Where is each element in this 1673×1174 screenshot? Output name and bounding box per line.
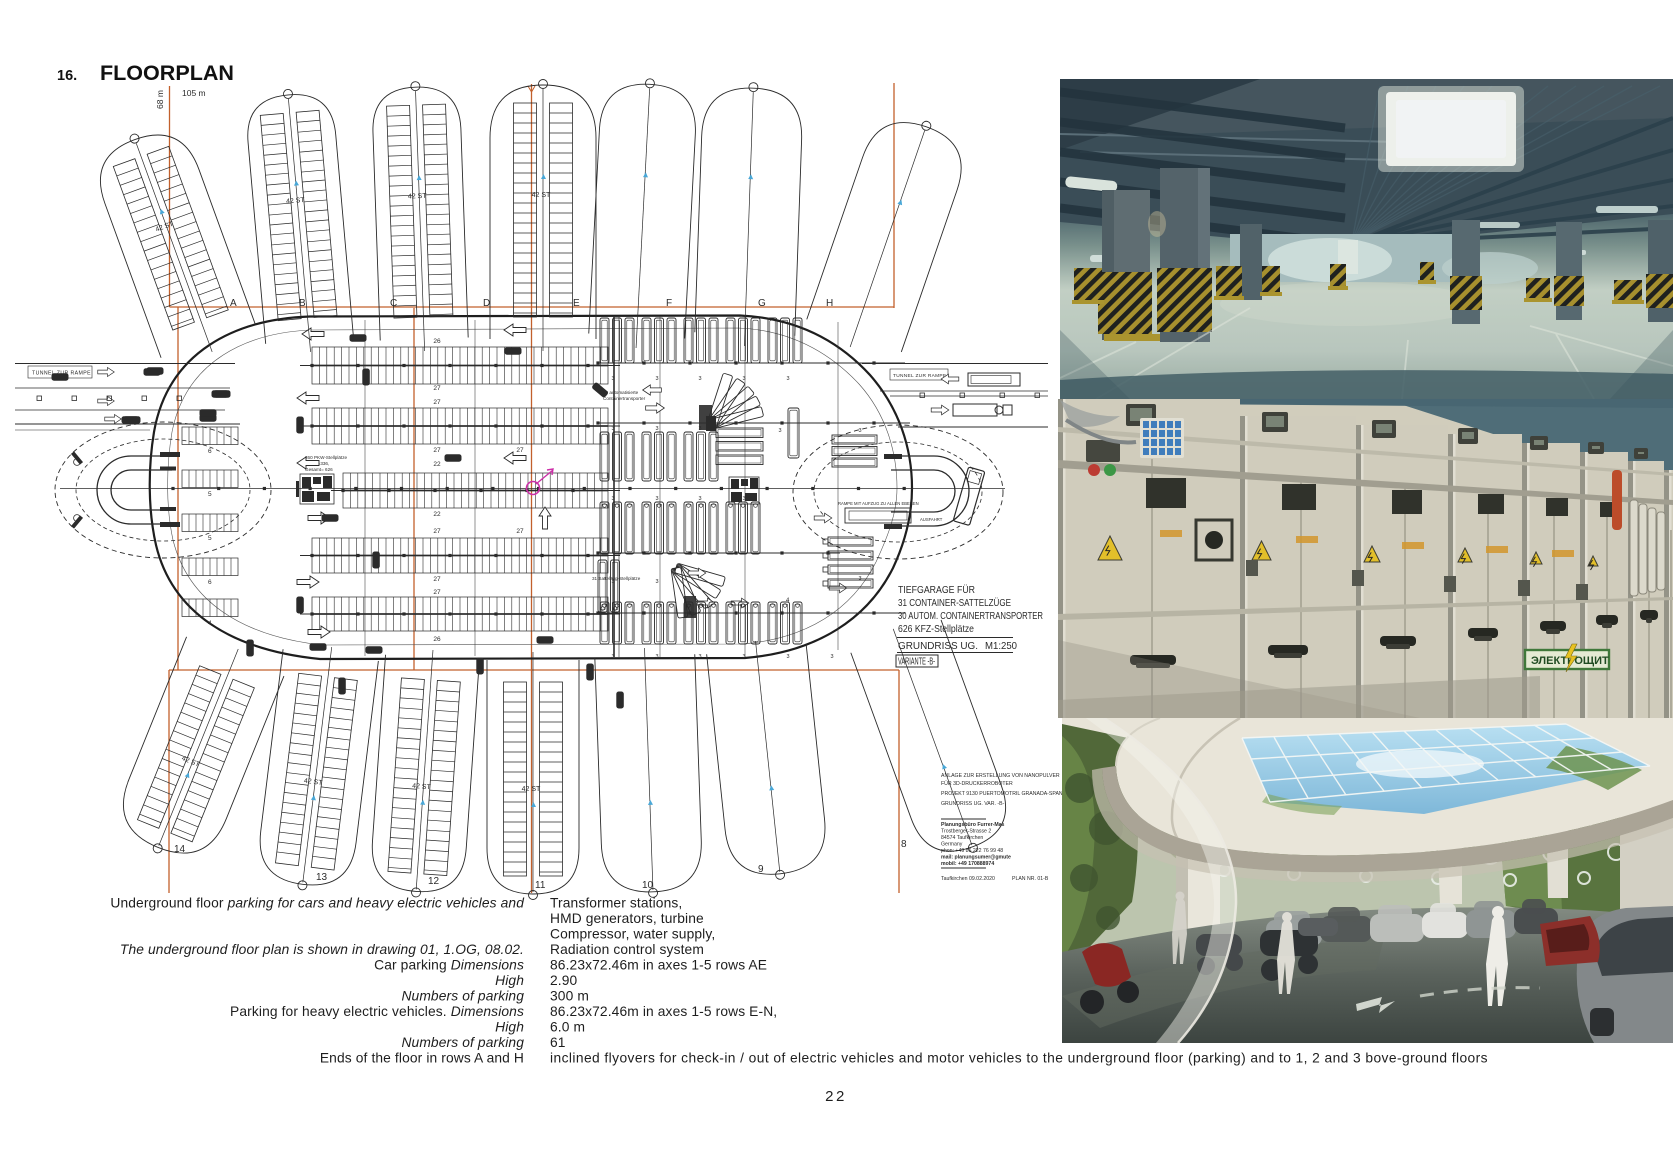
svg-text:VARIANTE -B-: VARIANTE -B-: [898, 657, 935, 668]
svg-text:16.: 16.: [57, 68, 77, 84]
svg-text:27: 27: [433, 589, 441, 596]
svg-text:42 ST: 42 ST: [412, 783, 432, 791]
svg-text:3: 3: [611, 376, 614, 382]
svg-text:22: 22: [433, 461, 441, 468]
svg-text:27: 27: [433, 528, 441, 535]
svg-text:3: 3: [830, 654, 833, 660]
svg-text:3: 3: [611, 426, 614, 432]
svg-text:13: 13: [316, 872, 328, 883]
svg-text:68 m: 68 m: [155, 90, 165, 109]
svg-text:GRUNDRISS UG. VAR. -B-: GRUNDRISS UG. VAR. -B-: [941, 801, 1005, 807]
svg-text:14: 14: [174, 844, 186, 855]
svg-text:Compressor, water supply,: Compressor, water supply,: [550, 927, 715, 942]
svg-text:Car parking Dimensions: Car parking Dimensions: [374, 958, 524, 973]
svg-text:31 CONTAINER-SATTELZÜGE: 31 CONTAINER-SATTELZÜGE: [898, 597, 1011, 609]
svg-text:5: 5: [208, 535, 212, 542]
svg-text:phon: +49 86 222 76 99 48: phon: +49 86 222 76 99 48: [941, 848, 1003, 854]
svg-text:61: 61: [550, 1035, 566, 1050]
svg-text:F: F: [666, 298, 672, 309]
svg-text:Gesamt= 626: Gesamt= 626: [305, 467, 333, 472]
svg-text:M1:250: M1:250: [985, 640, 1017, 652]
svg-text:3: 3: [698, 376, 701, 382]
svg-text:A: A: [230, 298, 237, 309]
svg-text:Numbers of parking: Numbers of parking: [401, 1035, 524, 1050]
svg-text:3: 3: [858, 576, 861, 582]
svg-text:42 ST: 42 ST: [303, 778, 323, 787]
svg-text:Parking for heavy electric veh: Parking for heavy electric vehicles. Dim…: [230, 1004, 524, 1019]
svg-text:42 ST: 42 ST: [532, 192, 551, 199]
svg-text:105 m: 105 m: [182, 88, 206, 98]
svg-text:mail: planungsumer@gmute: mail: planungsumer@gmute: [941, 855, 1011, 861]
svg-text:3: 3: [742, 376, 745, 382]
svg-text:mobil: +49 170888974: mobil: +49 170888974: [941, 861, 994, 867]
svg-text:FLOORPLAN: FLOORPLAN: [100, 61, 234, 85]
svg-text:3: 3: [698, 654, 701, 660]
svg-text:6: 6: [208, 579, 212, 586]
svg-text:42 ST: 42 ST: [286, 197, 306, 206]
svg-text:27: 27: [433, 447, 441, 454]
svg-text:D: D: [483, 298, 490, 309]
svg-text:High: High: [495, 973, 524, 988]
svg-text:84574 Taufkirchen: 84574 Taufkirchen: [941, 835, 983, 841]
svg-text:3: 3: [655, 654, 658, 660]
svg-text:ANLAGE ZUR ERSTELLUNG VON NANO: ANLAGE ZUR ERSTELLUNG VON NANOPULVER: [941, 773, 1060, 779]
svg-text:3: 3: [698, 496, 701, 502]
svg-text:Germany: Germany: [941, 842, 963, 848]
svg-text:Planungsbüro Furrer-Mas: Planungsbüro Furrer-Mas: [941, 822, 1005, 828]
svg-text:27: 27: [516, 447, 524, 454]
svg-text:27: 27: [433, 399, 441, 406]
svg-text:10: 10: [642, 880, 654, 891]
svg-text:G: G: [758, 298, 766, 309]
svg-text:GRUNDRISS UG.: GRUNDRISS UG.: [898, 640, 978, 652]
svg-text:42 ST: 42 ST: [522, 786, 541, 793]
svg-text:26: 26: [433, 636, 441, 643]
svg-text:TUNNEL ZUR RAMPE: TUNNEL ZUR RAMPE: [893, 373, 946, 379]
svg-text:3: 3: [611, 579, 614, 585]
svg-text:30 automatisierte: 30 automatisierte: [603, 390, 639, 395]
svg-text:3: 3: [655, 376, 658, 382]
svg-text:300 m: 300 m: [550, 989, 589, 1004]
svg-text:3: 3: [742, 654, 745, 660]
svg-text:626 KFZ-Stellplätze: 626 KFZ-Stellplätze: [898, 623, 974, 635]
svg-text:TIEFGARAGE FÜR: TIEFGARAGE FÜR: [898, 584, 975, 596]
svg-text:Containertransporter: Containertransporter: [603, 396, 646, 401]
svg-text:3: 3: [611, 654, 614, 660]
svg-text:Taufkirchen 09.02.2020: Taufkirchen 09.02.2020: [941, 876, 995, 882]
svg-text:B: B: [299, 298, 306, 309]
svg-text:Trostberger-Strasse 2: Trostberger-Strasse 2: [941, 829, 991, 835]
svg-text:3: 3: [655, 579, 658, 585]
svg-text:8: 8: [901, 839, 907, 850]
svg-text:6.0 m: 6.0 m: [550, 1020, 585, 1035]
svg-text:E: E: [573, 298, 580, 309]
svg-text:26: 26: [433, 338, 441, 345]
svg-text:High: High: [495, 1020, 524, 1035]
svg-text:PROJEKT 9130 PUERTOMOTRIL GRAN: PROJEKT 9130 PUERTOMOTRIL GRANADA-SPANIE…: [941, 791, 1072, 797]
svg-text:3: 3: [655, 496, 658, 502]
svg-text:3: 3: [698, 426, 701, 432]
svg-text:Transformer stations,: Transformer stations,: [550, 896, 682, 911]
svg-text:86.23x72.46m in axes 1-5 rows: 86.23x72.46m in axes 1-5 rows E-N,: [550, 1004, 777, 1019]
svg-text:6: 6: [208, 448, 212, 455]
svg-text:31 Sattelzug-Stellplätze: 31 Sattelzug-Stellplätze: [592, 576, 641, 581]
svg-text:Underground floor parking for: Underground floor parking for cars and h…: [110, 896, 525, 911]
svg-text:The underground floor plan is: The underground floor plan is shown in d…: [120, 942, 524, 957]
svg-text:Ends of the floor in rows A an: Ends of the floor in rows A and H: [320, 1051, 524, 1066]
svg-text:27: 27: [433, 385, 441, 392]
svg-text:260 PKW-Stellplätze: 260 PKW-Stellplätze: [305, 455, 347, 460]
svg-text:30 AUTOM. CONTAINERTRANSPORTER: 30 AUTOM. CONTAINERTRANSPORTER: [898, 610, 1043, 622]
svg-text:3: 3: [778, 428, 781, 434]
svg-text:22: 22: [433, 511, 441, 518]
svg-text:5: 5: [208, 491, 212, 498]
svg-text:inclined flyovers for check-in: inclined flyovers for check-in / out of …: [550, 1051, 1488, 1066]
svg-text:RAMPE MIT AUFZUG ZU ALLEN EBEN: RAMPE MIT AUFZUG ZU ALLEN EBENEN: [838, 501, 919, 506]
svg-text:HMD generators, turbine: HMD generators, turbine: [550, 911, 704, 926]
svg-text:27: 27: [433, 576, 441, 583]
svg-text:11: 11: [535, 880, 546, 891]
svg-text:12: 12: [428, 876, 440, 887]
svg-text:FÜR 3D-DRUCKERROBOTER: FÜR 3D-DRUCKERROBOTER: [941, 780, 1013, 787]
svg-text:3: 3: [655, 426, 658, 432]
svg-text:3: 3: [786, 376, 789, 382]
svg-text:AUSFAHRT: AUSFAHRT: [920, 517, 943, 522]
svg-text:4: 4: [208, 620, 212, 627]
svg-text:86.23x72.46m in axes 1-5 rows: 86.23x72.46m in axes 1-5 rows AE: [550, 958, 767, 973]
svg-text:22: 22: [825, 1088, 847, 1105]
svg-text:27: 27: [516, 528, 524, 535]
svg-text:3: 3: [858, 428, 861, 434]
svg-text:9: 9: [758, 864, 764, 875]
svg-text:H: H: [826, 298, 833, 309]
svg-text:Numbers of parking: Numbers of parking: [401, 989, 524, 1004]
svg-text:C: C: [390, 298, 397, 309]
svg-text:3: 3: [742, 496, 745, 502]
svg-text:PLAN NR. 01-B: PLAN NR. 01-B: [1012, 876, 1049, 882]
svg-text:3: 3: [786, 654, 789, 660]
svg-text:3: 3: [611, 496, 614, 502]
svg-text:Radiation control system: Radiation control system: [550, 942, 704, 957]
svg-text:42 ST: 42 ST: [408, 193, 428, 201]
svg-text:2.90: 2.90: [550, 973, 578, 988]
